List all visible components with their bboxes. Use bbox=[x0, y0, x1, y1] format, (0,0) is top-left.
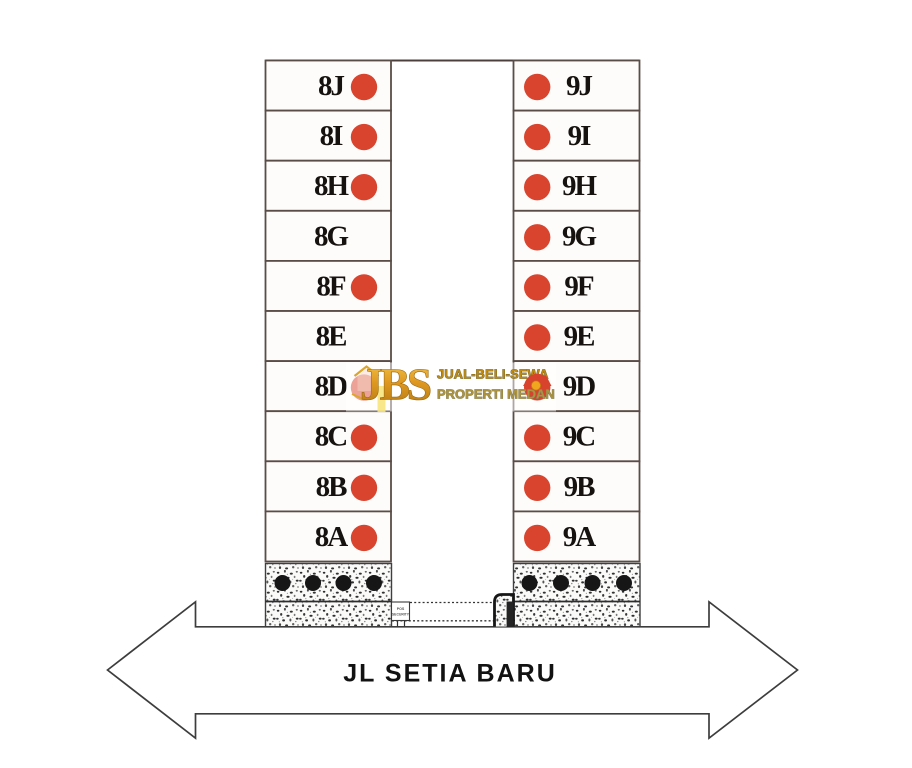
svg-text:8E: 8E bbox=[316, 321, 347, 353]
svg-text:8I: 8I bbox=[320, 120, 344, 152]
svg-text:9J: 9J bbox=[566, 70, 593, 102]
svg-text:9A: 9A bbox=[563, 521, 597, 553]
svg-text:8H: 8H bbox=[314, 170, 350, 202]
svg-text:8B: 8B bbox=[316, 471, 348, 503]
svg-text:9I: 9I bbox=[568, 120, 592, 152]
svg-text:8D: 8D bbox=[315, 371, 348, 403]
svg-text:8J: 8J bbox=[318, 70, 345, 102]
svg-text:JBS: JBS bbox=[360, 359, 431, 410]
svg-text:9F: 9F bbox=[564, 270, 594, 302]
svg-text:8G: 8G bbox=[314, 220, 349, 252]
svg-text:8A: 8A bbox=[315, 521, 349, 553]
svg-text:9D: 9D bbox=[563, 371, 596, 403]
svg-text:8C: 8C bbox=[315, 421, 347, 453]
svg-text:9C: 9C bbox=[563, 421, 595, 453]
svg-text:POS: POS bbox=[397, 607, 405, 611]
svg-text:JL SETIA BARU: JL SETIA BARU bbox=[343, 660, 557, 688]
svg-text:8F: 8F bbox=[316, 270, 346, 302]
svg-text:SECURITY: SECURITY bbox=[392, 613, 410, 617]
svg-text:9E: 9E bbox=[564, 321, 595, 353]
svg-text:9G: 9G bbox=[562, 220, 597, 252]
svg-text:9B: 9B bbox=[564, 471, 596, 503]
svg-text:9H: 9H bbox=[562, 170, 598, 202]
